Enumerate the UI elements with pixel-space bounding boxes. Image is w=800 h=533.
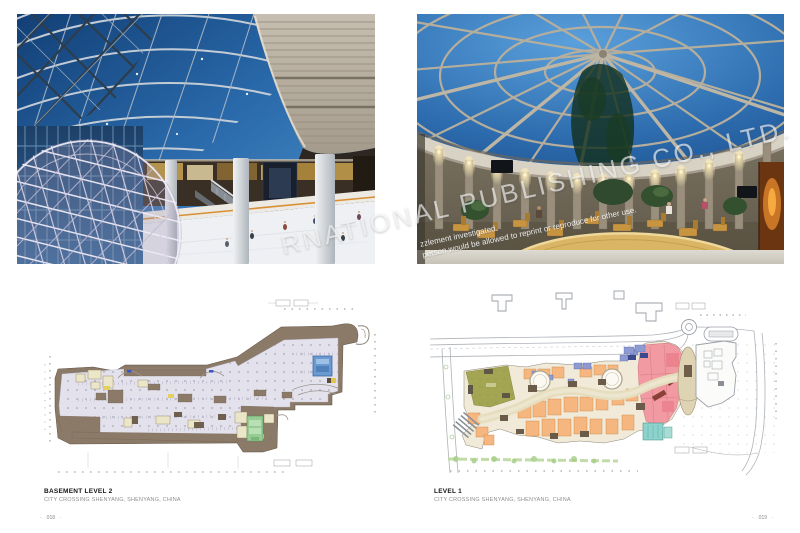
- folio-number-left: 018: [47, 515, 55, 521]
- caption-level-1: LEVEL 1 CITY CROSSING SHENYANG, SHENYANG…: [434, 488, 571, 503]
- folio-number-right: 019: [759, 515, 767, 521]
- book-spread-page: { "captions": { "left": { "title": "BASE…: [0, 0, 800, 533]
- car-symbol: [127, 370, 132, 373]
- floor-plan-level-1: [428, 287, 792, 487]
- plan-title-right: LEVEL 1: [434, 488, 571, 495]
- level1-plan-drawing: [428, 287, 792, 487]
- roundabout: [682, 320, 697, 335]
- photo-mall-atrium: [17, 14, 375, 264]
- page-number-left: · 018 ·: [40, 515, 62, 521]
- wall-screen-right: [737, 186, 757, 198]
- folio-dot: ·: [40, 515, 42, 521]
- basement-plan-drawing: [28, 296, 396, 484]
- photo-dome-atrium: [417, 14, 784, 264]
- page-number-right: · 019 ·: [752, 515, 774, 521]
- folio-dot: ·: [752, 515, 754, 521]
- folio-dot: ·: [772, 515, 774, 521]
- context-buildings: [492, 291, 662, 321]
- storefront-right: [759, 162, 784, 250]
- caption-basement-level-2: BASEMENT LEVEL 2 CITY CROSSING SHENYANG,…: [44, 488, 181, 503]
- plan-title-left: BASEMENT LEVEL 2: [44, 488, 181, 495]
- folio-dot: ·: [60, 515, 62, 521]
- car-symbol: [209, 370, 214, 373]
- floor: [417, 250, 784, 264]
- dimension-lines: [88, 452, 238, 468]
- mall-atrium-illustration: [17, 14, 375, 264]
- annex-outline: [696, 341, 736, 407]
- plan-subtitle-right: CITY CROSSING SHENYANG, SHENYANG, CHINA: [434, 497, 571, 503]
- atrium-core: [684, 365, 692, 377]
- floor-plan-basement-level-2: [28, 296, 396, 484]
- wall-screen-left: [491, 160, 513, 173]
- dome-atrium-illustration: [417, 14, 784, 264]
- plan-subtitle-left: CITY CROSSING SHENYANG, SHENYANG, CHINA: [44, 497, 181, 503]
- lens-atrium: [678, 347, 698, 415]
